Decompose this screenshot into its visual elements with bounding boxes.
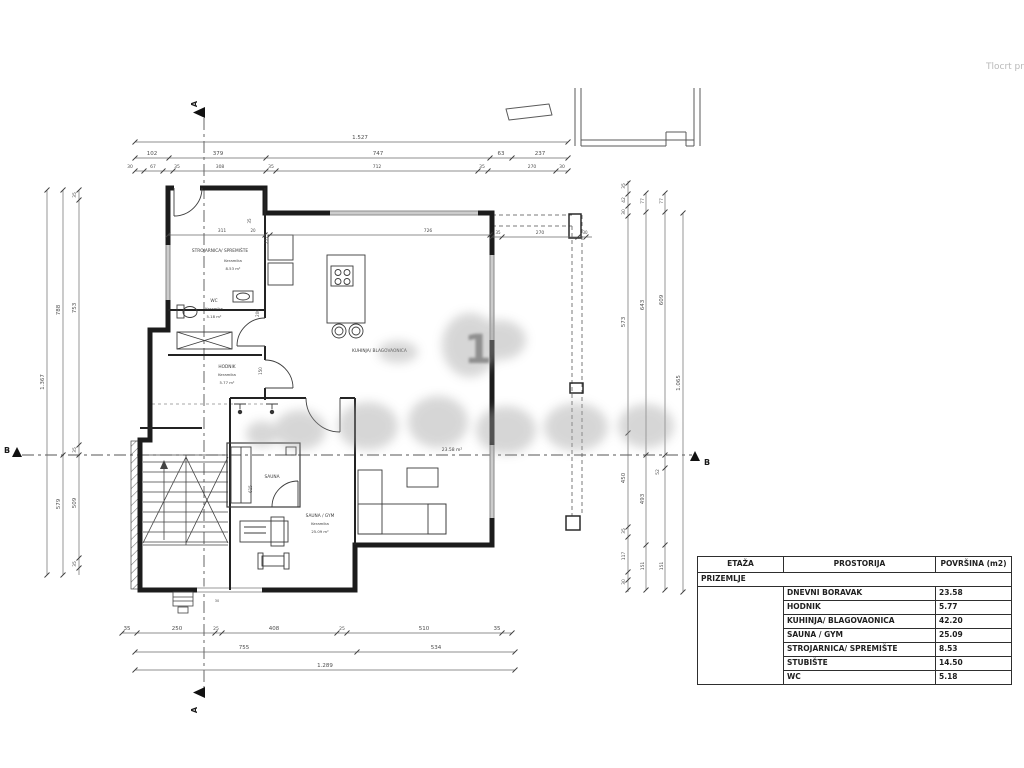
dim-label: 1.527 [352,135,368,141]
dim-label: 25 [339,626,345,632]
dim-label: 1.065 [676,375,682,391]
dim-label: 35 [174,164,180,170]
dim-label: 30 [215,599,219,603]
door-strojarnica [174,188,202,216]
dim-label: 747 [373,151,384,157]
dim-label: 20 [250,228,256,233]
sofa [358,470,382,534]
pergola-columns [566,214,583,530]
area-value-cell: 23.58 [936,587,1012,601]
room-label: 8.53 m² [226,266,241,271]
door-hodnik [265,360,293,388]
room-label: SAUNA [264,474,279,480]
room-label: 25.09 m² [311,529,329,534]
toilet [183,307,197,318]
stool [349,324,363,338]
kitchen-counter [268,263,293,285]
dim-label: 30 [582,230,588,235]
dim-label: 712 [373,164,382,170]
dim-label: 35 [72,561,78,567]
page-title: Tlocrt pr [986,62,1024,76]
area-value-cell: 42.20 [936,615,1012,629]
section-lines [22,118,692,688]
dim-label: 408 [269,626,280,632]
dim-label: 35 [495,230,501,235]
area-value-cell: 14.50 [936,657,1012,671]
room-label: Keramika [224,258,242,263]
table-header-cell: POVRŠINA (m2) [936,557,1012,573]
section-marker-b-right: B [704,458,710,467]
dim-label: 30 [127,164,133,170]
dim-label: 200 [255,309,260,317]
dim-label: 573 [621,316,627,327]
dim-label: 151 [659,562,665,571]
arrow-b-right [690,451,700,461]
door-wc [237,318,265,346]
table-header-cell: ETAŽA [698,557,784,573]
dim-label: 35 [124,626,131,632]
dim-label: 67 [150,164,156,170]
dim-label: 102 [147,151,158,157]
dim-label: 35 [621,183,627,189]
room-name-cell: KUHINJA/ BLAGOVAONICA [784,615,936,629]
room-label: WC [210,298,217,304]
room-name-cell: STROJARNICA/ SPREMIŠTE [784,643,936,657]
sofa-arm [428,504,446,534]
dim-label: 30 [621,209,627,215]
dim-label: 77 [640,198,646,204]
room-label: 5.18 m² [207,314,222,319]
dim-label: 30 [559,164,565,170]
dim-label: 35 [72,447,78,453]
room-label: STROJARNICA/ SPREMIŠTE [192,247,248,254]
dim-label: 788 [56,304,62,315]
dim-label: 609 [659,294,665,305]
sauna-door [272,481,298,507]
watermark-blobs [246,313,674,454]
dim-label: 77 [659,198,665,204]
room-label: SAUNA / GYM [306,513,335,519]
dim-label: 643 [640,299,646,310]
dim-label: 35 [268,164,274,170]
table-header-cell: PROSTORIJA [784,557,936,573]
ceiling-fixture [234,404,278,409]
dim-label: 250 [172,626,183,632]
arrow-a-top [193,107,205,118]
dim-label: 151 [640,562,646,571]
dim-label: 42 [621,197,627,203]
dim-label: 35 [621,528,627,534]
dim-label: 270 [528,164,537,170]
kitchen-counter [268,235,293,260]
kitchen-island [327,255,365,323]
room-label: 23.58 m² [442,447,463,453]
table-header-row: ETAŽAPROSTORIJAPOVRŠINA (m2) [698,557,1012,573]
section-marker-a-bottom: A [190,706,199,713]
sofa [358,504,446,534]
dim-label: 1.367 [40,374,46,390]
dim-label: 1.289 [317,663,333,669]
dim-label: 450 [621,472,627,483]
area-value-cell: 5.18 [936,671,1012,685]
dim-label: 579 [56,498,62,509]
section-marker-a-top: A [190,100,199,107]
dim-label: 755 [239,645,250,651]
dim-label: 493 [640,493,646,504]
room-name-cell: DNEVNI BORAVAK [784,587,936,601]
dim-label: 311 [218,228,227,234]
dim-label: 117 [621,552,627,561]
floor-row-label: PRIZEMLJE [698,573,1012,587]
arrow-a-bottom [193,687,205,698]
dim-label: 270 [536,230,545,236]
room-name-cell: SAUNA / GYM [784,629,936,643]
room-label: 5.77 m² [220,380,235,385]
etaza-cell [698,587,784,685]
room-name-cell: HODNIK [784,601,936,615]
room-label: Keramika [311,521,329,526]
coffee-table [407,468,438,487]
dim-label: 237 [535,151,546,157]
room-label: Keramika [205,306,223,311]
dim-label: 726 [424,228,433,234]
room-label: Keramika [218,372,236,377]
area-value-cell: 5.77 [936,601,1012,615]
room-name-cell: WC [784,671,936,685]
stool [332,324,346,338]
dim-label: 25 [213,626,219,632]
arrow-b-left [12,447,22,457]
neighbor-structure [506,88,700,146]
parked-object-outline [506,104,552,120]
area-table: ETAŽAPROSTORIJAPOVRŠINA (m2) PRIZEMLJEDN… [697,556,1011,685]
dim-label: 277 [264,236,269,244]
table-body: PRIZEMLJEDNEVNI BORAVAK23.58HODNIK5.77KU… [698,573,1012,685]
dim-label: 509 [72,497,78,508]
dim-label: 35 [72,192,78,198]
gym-bench [240,521,288,542]
dim-label: 510 [419,626,430,632]
dim-label: 63 [498,151,505,157]
dim-label: 308 [216,164,225,170]
dim-label: 52 [655,469,661,475]
dim-label: 35 [494,626,501,632]
area-value-cell: 8.53 [936,643,1012,657]
room-label: HODNIK [218,364,235,370]
dim-label: 615 [248,485,253,493]
watermark-digit: 1 [464,327,492,373]
dim-label: 150 [258,367,263,375]
dim-label: 753 [72,302,78,313]
dim-label: 379 [213,151,224,157]
pergola-outline [492,215,582,516]
barbell [262,556,284,566]
dim-label: 534 [431,645,442,651]
dim-label: 30 [621,579,627,585]
dim-label: 35 [247,218,252,224]
dim-label: 35 [479,164,485,170]
room-name-cell: STUBIŠTE [784,657,936,671]
section-marker-b-left: B [4,446,10,455]
table-row: DNEVNI BORAVAK23.58 [698,587,1012,601]
floorplan-page: 1.52710237974763237306735308357123527030… [0,0,1024,768]
area-value-cell: 25.09 [936,629,1012,643]
